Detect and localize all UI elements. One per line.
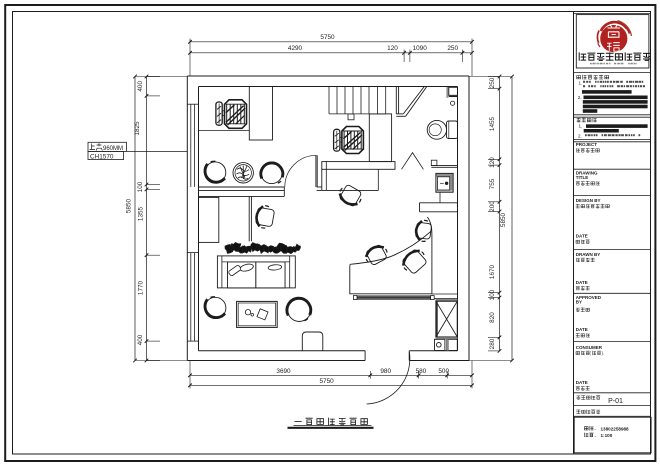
svg-text:DATE: DATE (576, 380, 588, 385)
svg-text:980: 980 (380, 368, 391, 375)
svg-text:1090: 1090 (413, 45, 428, 52)
svg-text:5750: 5750 (320, 34, 335, 41)
svg-text:250: 250 (489, 77, 496, 88)
svg-text:120: 120 (489, 157, 496, 168)
svg-text:200: 200 (489, 201, 496, 212)
svg-text:13802258988: 13802258988 (601, 426, 630, 431)
svg-text:250: 250 (447, 45, 458, 52)
svg-text:100: 100 (137, 181, 144, 192)
svg-text:1.: 1. (579, 124, 583, 129)
svg-text:5850: 5850 (500, 212, 507, 227)
svg-text:1.: 1. (579, 81, 583, 86)
svg-text:2.: 2. (578, 95, 582, 100)
svg-text:580: 580 (416, 368, 427, 375)
svg-text:DRAWN BY: DRAWN BY (576, 252, 601, 257)
svg-text:BY: BY (576, 299, 582, 304)
svg-text:1770: 1770 (138, 280, 145, 295)
svg-text:1:100: 1:100 (601, 433, 613, 438)
svg-text:DATE: DATE (576, 234, 588, 239)
svg-text:).: ). (602, 350, 605, 355)
svg-text:PROJECT: PROJECT (576, 142, 598, 147)
svg-text:DATE: DATE (576, 327, 588, 332)
svg-text:500: 500 (438, 368, 449, 375)
svg-text:1355: 1355 (138, 206, 145, 221)
svg-text:960MM: 960MM (103, 146, 123, 152)
svg-text:3690: 3690 (276, 368, 291, 375)
svg-text:1455: 1455 (489, 116, 496, 131)
svg-text:5850: 5850 (126, 198, 133, 213)
svg-text:280: 280 (489, 338, 496, 349)
svg-text:1825: 1825 (134, 121, 141, 136)
svg-text:P-01: P-01 (608, 398, 623, 405)
svg-text:755: 755 (489, 178, 496, 189)
svg-text:DATE: DATE (576, 280, 588, 285)
svg-text:400: 400 (137, 334, 144, 345)
svg-text::: : (604, 75, 605, 80)
svg-text:5750: 5750 (319, 378, 334, 385)
svg-text:CH1570: CH1570 (90, 153, 114, 160)
svg-text:CONSUMER: CONSUMER (576, 345, 603, 350)
svg-text:TITLE: TITLE (576, 175, 589, 180)
svg-text:1670: 1670 (489, 264, 496, 279)
svg-text:100: 100 (489, 289, 496, 300)
svg-text:4290: 4290 (288, 45, 303, 52)
svg-text:400: 400 (137, 81, 144, 92)
svg-text:.: . (595, 433, 596, 438)
svg-text:DESIGN BY: DESIGN BY (576, 198, 601, 203)
svg-text:2.: 2. (578, 133, 582, 138)
svg-text:.: . (595, 426, 596, 431)
svg-text:120: 120 (387, 45, 398, 52)
svg-text:820: 820 (489, 312, 496, 323)
